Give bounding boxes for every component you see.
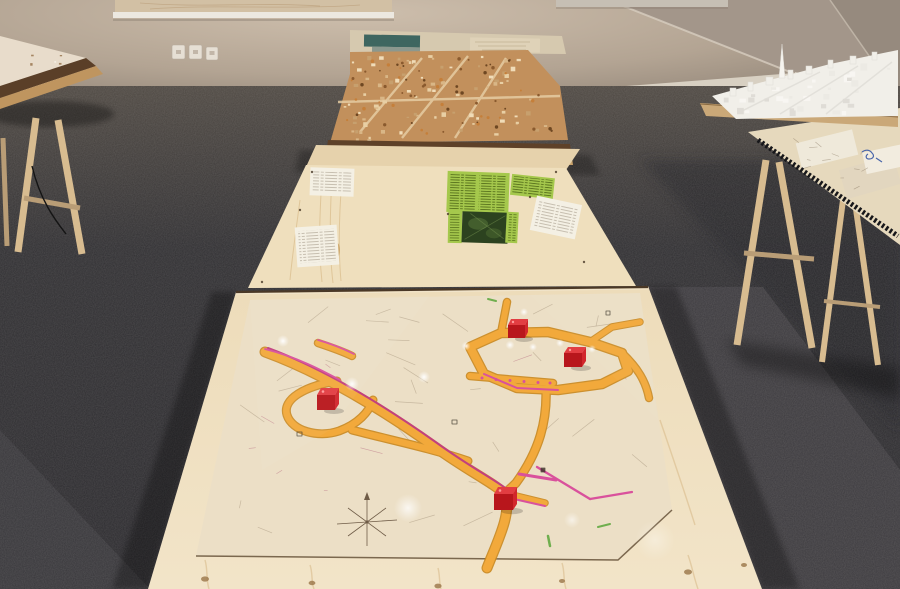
- tex-cork-trees-item: [504, 108, 506, 110]
- paper-sheet-a: [310, 167, 355, 197]
- tex-cork-trees-item: [384, 85, 387, 88]
- tex-cork-buildings-item: [362, 118, 365, 120]
- tex-cork-buildings-item: [407, 90, 411, 93]
- tex-cork-buildings-item: [380, 97, 385, 100]
- tex-cork-trees-item: [489, 64, 491, 66]
- tex-left-speckles-item: [30, 63, 32, 66]
- tex-cork-buildings-item: [354, 84, 359, 87]
- tex-cork-trees-item: [409, 94, 412, 97]
- aerial-photo: [461, 211, 508, 244]
- tex-white-blocks-item: [790, 108, 795, 111]
- tex-white-blocks-item: [724, 98, 729, 103]
- tex-cork-buildings-item: [357, 68, 362, 71]
- tex-white-blocks-item: [848, 104, 855, 108]
- tex-white-blocks-item: [851, 80, 858, 86]
- green-strip-label: [448, 212, 463, 243]
- tex-cork-trees-item: [387, 63, 390, 66]
- tex-cork-trees-item: [356, 113, 359, 116]
- tex-white-blocks-item: [823, 94, 829, 100]
- tex-cork-buildings-item: [398, 58, 401, 61]
- tex-cork-buildings-item: [440, 66, 443, 69]
- tex-cork-trees-item: [355, 98, 358, 101]
- tex-cork-trees-item: [362, 107, 366, 111]
- tex-cork-trees-item: [442, 131, 444, 133]
- exhibition-photo: [0, 0, 900, 589]
- tex-cork-trees-item: [455, 85, 458, 88]
- tex-cork-trees-item: [378, 101, 380, 103]
- tex-cork-buildings-item: [414, 113, 417, 116]
- tex-cork-trees-item: [504, 72, 506, 74]
- tex-cork-buildings-item: [474, 87, 478, 90]
- tex-cork-buildings-item: [385, 75, 388, 78]
- tex-cork-trees-item: [537, 94, 540, 97]
- tex-cork-trees-item: [398, 76, 401, 79]
- tex-cork-trees-item: [360, 83, 363, 86]
- tex-cork-trees-item: [531, 99, 535, 103]
- tex-cork-buildings-item: [407, 60, 410, 62]
- tex-cork-trees-item: [401, 92, 403, 94]
- tex-cork-trees-item: [346, 119, 348, 121]
- tex-cork-buildings-item: [535, 129, 539, 132]
- tex-cork-buildings-item: [428, 55, 432, 58]
- tex-cork-trees-item: [371, 59, 375, 63]
- tex-white-blocks-item: [789, 96, 792, 99]
- tex-cork-buildings-item: [356, 138, 359, 140]
- tex-cork-buildings-item: [402, 74, 406, 76]
- tex-cork-buildings-item: [355, 130, 358, 133]
- tex-cork-buildings-item: [544, 125, 547, 127]
- tex-cork-buildings-item: [511, 67, 516, 72]
- tex-white-blocks-item: [829, 71, 835, 76]
- tex-cork-buildings-item: [469, 113, 474, 117]
- tex-cork-buildings-item: [371, 63, 375, 66]
- tex-cork-trees-item: [455, 90, 458, 93]
- tex-cork-buildings-item: [413, 63, 416, 65]
- tex-cork-buildings-item: [452, 112, 455, 114]
- tex-cork-trees-item: [440, 103, 443, 106]
- tex-cork-buildings-item: [434, 116, 436, 119]
- tex-cork-trees-item: [548, 127, 551, 130]
- tex-cork-trees-item: [436, 85, 439, 88]
- tex-cork-trees-item: [352, 77, 355, 80]
- tex-cork-trees-item: [425, 132, 428, 135]
- tex-cork-buildings-item: [487, 86, 489, 88]
- tex-cork-trees-item: [411, 122, 413, 124]
- tex-cork-trees-item: [476, 121, 478, 123]
- tex-cork-buildings-item: [450, 67, 453, 69]
- tex-cork-trees-item: [401, 62, 404, 65]
- tex-left-speckles-item: [60, 55, 62, 56]
- tex-cork-buildings-item: [409, 61, 412, 64]
- tex-cork-trees-item: [399, 67, 401, 69]
- tex-cork-buildings-item: [516, 122, 519, 124]
- tex-cork-buildings-item: [500, 120, 505, 123]
- tex-cork-buildings-item: [442, 112, 447, 117]
- tex-cork-trees-item: [405, 79, 407, 81]
- tex-cork-trees-item: [483, 71, 486, 74]
- tex-cork-trees-item: [468, 59, 470, 61]
- tex-white-blocks-item: [776, 96, 783, 101]
- tex-white-blocks-item: [748, 98, 754, 103]
- tex-cork-trees-item: [364, 71, 366, 73]
- tex-cork-trees-item: [475, 102, 478, 105]
- tex-cork-buildings-item: [459, 129, 462, 132]
- tex-cork-trees-item: [460, 91, 463, 94]
- green-photo-edge: [505, 212, 519, 244]
- tex-cork-buildings-item: [478, 65, 480, 67]
- tex-cork-buildings-item: [472, 123, 474, 125]
- tex-white-blocks-item: [812, 80, 816, 83]
- framed-item-right: [556, 0, 728, 8]
- tex-cork-trees-item: [491, 66, 494, 69]
- tex-cork-trees-item: [402, 65, 404, 67]
- framed-drawing: [113, 0, 394, 20]
- tex-left-speckles-item: [31, 55, 34, 57]
- tex-cork-buildings-item: [494, 133, 498, 135]
- green-card-large: [446, 171, 509, 214]
- tex-white-blocks-item: [797, 106, 803, 112]
- tex-white-blocks-item: [739, 99, 746, 103]
- tex-cork-trees-item: [520, 90, 522, 92]
- tex-cork-buildings-item: [502, 111, 506, 114]
- tex-cork-trees-item: [462, 122, 464, 124]
- tex-cork-buildings-item: [379, 56, 384, 60]
- tex-cork-trees-item: [396, 64, 398, 66]
- tex-white-blocks-item: [850, 72, 853, 75]
- tex-cork-buildings-item: [363, 122, 367, 127]
- tex-white-blocks-item: [771, 87, 776, 90]
- tex-cork-buildings-item: [399, 131, 402, 134]
- tex-cork-trees-item: [480, 115, 483, 118]
- tex-cork-trees-item: [485, 64, 487, 66]
- tex-white-blocks-item: [745, 110, 750, 113]
- tex-cork-buildings-item: [395, 79, 399, 83]
- tex-cork-trees-item: [532, 127, 535, 130]
- tex-cork-buildings-item: [489, 76, 493, 79]
- tex-cork-buildings-item: [476, 117, 479, 120]
- tex-cork-buildings-item: [505, 74, 509, 78]
- tex-cork-trees-item: [422, 85, 425, 88]
- tex-cork-buildings-item: [432, 58, 434, 60]
- teal-card: [364, 35, 420, 48]
- tex-cork-buildings-item: [427, 88, 431, 91]
- tex-white-blocks-item: [807, 86, 812, 89]
- tex-cork-trees-item: [383, 123, 386, 126]
- tex-cork-buildings-item: [526, 111, 531, 115]
- tex-cork-buildings-item: [344, 106, 347, 108]
- tex-cork-buildings-item: [352, 62, 354, 64]
- tex-cork-buildings-item: [431, 83, 435, 86]
- tex-cork-buildings-item: [378, 84, 382, 88]
- tex-cork-buildings-item: [351, 130, 354, 132]
- tex-cork-buildings-item: [494, 80, 499, 83]
- tex-cork-buildings-item: [363, 93, 366, 96]
- tex-cork-buildings-item: [494, 82, 498, 86]
- tex-cork-trees-item: [499, 117, 501, 119]
- tex-white-blocks-item: [833, 110, 841, 114]
- tex-cork-buildings-item: [381, 130, 385, 134]
- tex-cork-buildings-item: [481, 56, 484, 58]
- tex-cork-buildings-item: [441, 81, 445, 84]
- tex-cork-buildings-item: [407, 117, 410, 118]
- tex-cork-trees-item: [439, 78, 443, 82]
- frame-bottom-bar: [113, 12, 394, 18]
- tex-white-blocks-item: [842, 111, 846, 115]
- tex-cork-buildings-item: [432, 90, 436, 93]
- tex-cork-trees-item: [459, 68, 462, 71]
- tex-cork-buildings-item: [369, 137, 371, 139]
- tex-cork-buildings-item: [353, 116, 357, 119]
- tex-left-speckles-item: [54, 61, 56, 62]
- tex-cork-buildings-item: [374, 105, 379, 108]
- tex-cork-buildings-item: [382, 100, 387, 103]
- tex-cork-buildings-item: [515, 116, 518, 118]
- tex-cork-trees-item: [457, 57, 461, 61]
- green-card-right: [510, 174, 555, 199]
- tex-cork-buildings-item: [504, 59, 508, 62]
- tex-cork-trees-item: [379, 70, 381, 72]
- tex-cork-buildings-item: [353, 122, 357, 124]
- tex-cork-buildings-item: [421, 77, 423, 79]
- tex-cork-trees-item: [495, 125, 498, 128]
- tex-cork-buildings-item: [366, 78, 370, 80]
- tex-cork-trees-item: [420, 129, 423, 132]
- tex-white-blocks-item: [860, 64, 867, 71]
- tex-cork-buildings-item: [359, 131, 362, 134]
- tex-cork-trees-item: [446, 108, 449, 111]
- scene-svg: [0, 0, 900, 589]
- tex-white-blocks-item: [847, 78, 852, 81]
- tex-cork-buildings-item: [506, 80, 508, 81]
- tex-left-speckles-item: [59, 63, 62, 65]
- paper-sheet-b: [295, 225, 340, 268]
- tex-cork-trees-item: [414, 95, 416, 97]
- tex-white-blocks-item: [751, 94, 755, 97]
- tex-cork-buildings-item: [500, 82, 503, 84]
- tex-cork-buildings-item: [358, 112, 360, 114]
- tex-cork-buildings-item: [517, 59, 521, 61]
- tex-white-blocks-item: [887, 68, 890, 70]
- tex-white-blocks-item: [828, 88, 831, 90]
- tex-white-blocks-item: [821, 104, 826, 108]
- tex-cork-trees-item: [487, 116, 490, 119]
- tex-cork-trees-item: [391, 104, 394, 107]
- tex-white-blocks-item: [783, 99, 789, 103]
- tex-cork-trees-item: [494, 100, 496, 102]
- tex-cork-buildings-item: [367, 56, 371, 60]
- wall-sockets: [172, 45, 218, 60]
- tex-cork-buildings-item: [456, 94, 460, 97]
- tex-cork-trees-item: [418, 70, 420, 72]
- tex-cork-trees-item: [423, 79, 426, 82]
- tex-cork-buildings-item: [348, 104, 350, 106]
- tex-cork-buildings-item: [389, 81, 393, 85]
- tex-cork-trees-item: [508, 59, 510, 61]
